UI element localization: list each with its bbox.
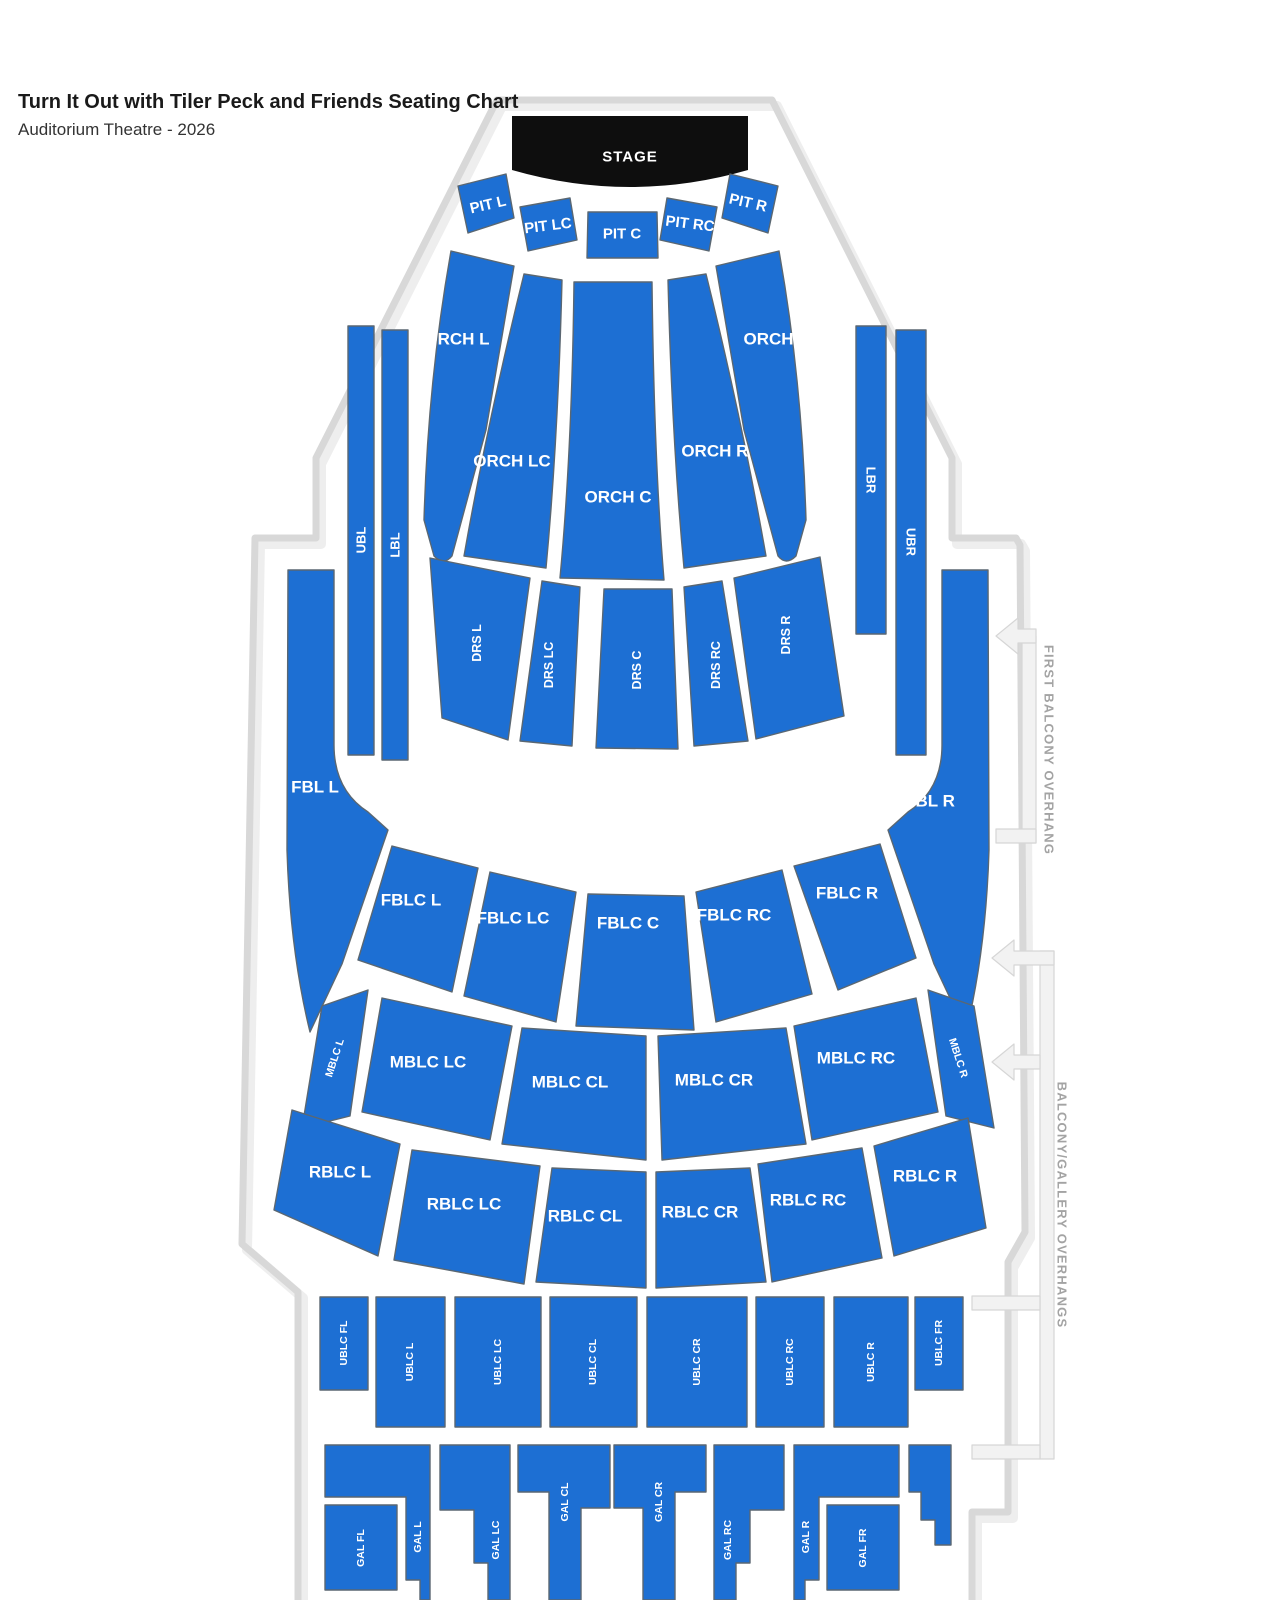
section-rblc-rc[interactable] xyxy=(758,1148,882,1282)
chart-header: Turn It Out with Tiler Peck and Friends … xyxy=(18,90,518,140)
section-pit-r[interactable] xyxy=(722,174,778,233)
first-balcony-bracket: FIRST BALCONY OVERHANG xyxy=(996,618,1057,855)
section-drs-l[interactable] xyxy=(430,558,530,740)
section-gal-fr-edge[interactable] xyxy=(909,1445,951,1545)
stage xyxy=(512,116,748,187)
section-gal-fl[interactable] xyxy=(325,1505,397,1590)
section-fblc-lc[interactable] xyxy=(464,872,576,1022)
section-ublc-fr[interactable] xyxy=(915,1297,963,1390)
section-ubr[interactable] xyxy=(896,330,926,755)
section-pit-lc[interactable] xyxy=(520,198,577,251)
section-drs-lc[interactable] xyxy=(520,581,580,746)
section-rblc-lc[interactable] xyxy=(394,1150,540,1284)
section-fblc-l[interactable] xyxy=(358,846,478,992)
section-mblc-lc[interactable] xyxy=(362,998,512,1140)
section-fblc-r[interactable] xyxy=(794,844,916,990)
section-ubl[interactable] xyxy=(348,326,374,755)
section-gal-lc[interactable] xyxy=(440,1445,510,1600)
seating-map-svg: FIRST BALCONY OVERHANG BALCONY/GALLERY O… xyxy=(0,0,1270,1600)
seating-chart-page: Turn It Out with Tiler Peck and Friends … xyxy=(0,0,1270,1600)
section-pit-c[interactable] xyxy=(587,212,658,258)
section-fblc-c[interactable] xyxy=(576,894,694,1030)
section-gal-cl[interactable] xyxy=(518,1445,610,1600)
section-ublc-fl[interactable] xyxy=(320,1297,368,1390)
section-ublc-l[interactable] xyxy=(376,1297,445,1427)
section-mblc-r[interactable] xyxy=(928,990,994,1128)
balcony-gallery-tick-upper xyxy=(972,1296,1040,1310)
balcony-gallery-tick-lower xyxy=(972,1445,1040,1459)
section-ublc-lc[interactable] xyxy=(455,1297,541,1427)
section-ublc-rc[interactable] xyxy=(756,1297,824,1427)
first-balcony-overhang-label: FIRST BALCONY OVERHANG xyxy=(1042,645,1057,855)
balcony-gallery-overhangs-label: BALCONY/GALLERY OVERHANGS xyxy=(1055,1082,1070,1329)
section-lbl[interactable] xyxy=(382,330,408,760)
section-pit-rc[interactable] xyxy=(660,198,717,251)
section-rblc-l[interactable] xyxy=(274,1110,400,1256)
section-drs-c[interactable] xyxy=(596,589,678,749)
balcony-gallery-bracket-line xyxy=(1040,951,1054,1459)
section-rblc-r[interactable] xyxy=(874,1118,986,1256)
section-orch-c[interactable] xyxy=(560,282,664,580)
section-drs-r[interactable] xyxy=(734,557,844,739)
page-title: Turn It Out with Tiler Peck and Friends … xyxy=(18,90,518,114)
section-mblc-cr[interactable] xyxy=(658,1028,806,1160)
section-rblc-cr[interactable] xyxy=(656,1168,766,1288)
section-ublc-r[interactable] xyxy=(834,1297,908,1427)
section-gal-rc[interactable] xyxy=(714,1445,784,1600)
section-mblc-cl[interactable] xyxy=(502,1028,646,1160)
section-ublc-cl[interactable] xyxy=(550,1297,637,1427)
section-ublc-cr[interactable] xyxy=(647,1297,747,1427)
venue-subtitle: Auditorium Theatre - 2026 xyxy=(18,120,518,140)
first-balcony-bracket-foot xyxy=(996,829,1036,843)
section-lbr[interactable] xyxy=(856,326,886,634)
section-gal-cr[interactable] xyxy=(614,1445,706,1600)
section-rblc-cl[interactable] xyxy=(536,1168,646,1288)
first-balcony-bracket-line xyxy=(1022,636,1036,843)
section-gal-fr[interactable] xyxy=(827,1505,899,1590)
section-fblc-rc[interactable] xyxy=(696,870,812,1022)
section-mblc-rc[interactable] xyxy=(794,998,938,1140)
